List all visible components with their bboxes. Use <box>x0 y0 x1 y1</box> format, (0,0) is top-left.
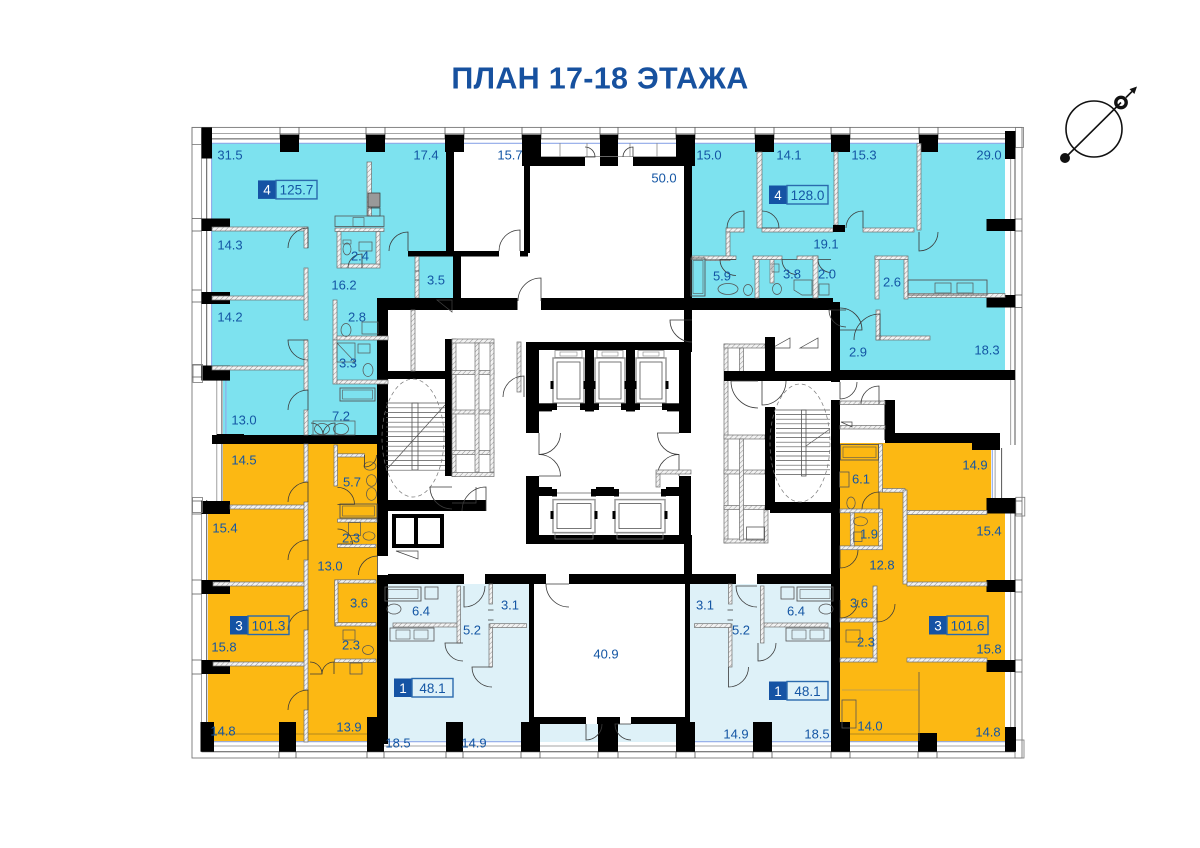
svg-text:1: 1 <box>399 681 407 696</box>
svg-text:14.1: 14.1 <box>776 148 801 163</box>
svg-text:7.2: 7.2 <box>332 409 350 424</box>
svg-text:3: 3 <box>235 618 243 633</box>
svg-text:3.6: 3.6 <box>350 596 368 611</box>
svg-text:6.4: 6.4 <box>787 604 805 619</box>
svg-text:1.9: 1.9 <box>860 527 878 542</box>
svg-text:2.4: 2.4 <box>351 249 369 264</box>
svg-text:12.8: 12.8 <box>869 558 894 573</box>
svg-text:2.3: 2.3 <box>857 635 875 650</box>
svg-text:5.7: 5.7 <box>343 475 361 490</box>
svg-text:15.4: 15.4 <box>212 521 237 536</box>
svg-text:5.2: 5.2 <box>732 623 750 638</box>
svg-text:101.6: 101.6 <box>951 618 985 633</box>
svg-text:14.9: 14.9 <box>723 727 748 742</box>
svg-text:3.5: 3.5 <box>427 273 445 288</box>
svg-text:13.9: 13.9 <box>336 720 361 735</box>
svg-text:50.0: 50.0 <box>651 171 676 186</box>
svg-text:14.3: 14.3 <box>217 238 242 253</box>
svg-text:14.9: 14.9 <box>461 736 486 751</box>
svg-text:18.5: 18.5 <box>385 736 410 751</box>
svg-text:13.0: 13.0 <box>317 559 342 574</box>
svg-text:31.5: 31.5 <box>217 148 242 163</box>
svg-text:3.3: 3.3 <box>339 356 357 371</box>
svg-text:4: 4 <box>774 188 782 203</box>
svg-text:128.0: 128.0 <box>791 188 825 203</box>
svg-text:14.9: 14.9 <box>962 458 987 473</box>
svg-text:18.3: 18.3 <box>974 343 999 358</box>
svg-text:15.4: 15.4 <box>976 524 1001 539</box>
svg-text:ПЛАН 17-18 ЭТАЖА: ПЛАН 17-18 ЭТАЖА <box>451 62 748 96</box>
svg-text:4: 4 <box>263 183 271 198</box>
svg-text:3.1: 3.1 <box>501 598 519 613</box>
svg-text:15.3: 15.3 <box>851 148 876 163</box>
svg-text:3.1: 3.1 <box>696 598 714 613</box>
svg-text:2.8: 2.8 <box>348 310 366 325</box>
svg-text:16.2: 16.2 <box>331 278 356 293</box>
svg-text:15.8: 15.8 <box>976 642 1001 657</box>
svg-text:2.3: 2.3 <box>342 638 360 653</box>
svg-text:101.3: 101.3 <box>252 618 286 633</box>
svg-text:14.8: 14.8 <box>210 724 235 739</box>
svg-text:15.7: 15.7 <box>497 148 522 163</box>
svg-text:14.0: 14.0 <box>857 719 882 734</box>
svg-text:48.1: 48.1 <box>419 681 445 696</box>
svg-text:6.4: 6.4 <box>412 604 430 619</box>
svg-text:13.0: 13.0 <box>231 413 256 428</box>
svg-text:5.9: 5.9 <box>713 269 731 284</box>
svg-text:19.1: 19.1 <box>813 237 838 252</box>
svg-text:6.1: 6.1 <box>852 472 870 487</box>
svg-text:3.8: 3.8 <box>783 267 801 282</box>
svg-text:15.8: 15.8 <box>211 640 236 655</box>
svg-text:125.7: 125.7 <box>280 183 314 198</box>
svg-text:18.5: 18.5 <box>804 727 829 742</box>
svg-text:17.4: 17.4 <box>413 148 438 163</box>
svg-text:29.0: 29.0 <box>976 148 1001 163</box>
svg-text:48.1: 48.1 <box>794 684 820 699</box>
svg-text:2.6: 2.6 <box>883 275 901 290</box>
svg-text:15.0: 15.0 <box>696 148 721 163</box>
svg-text:3: 3 <box>934 618 942 633</box>
svg-text:2.3: 2.3 <box>342 531 360 546</box>
svg-text:14.2: 14.2 <box>217 310 242 325</box>
svg-text:3.6: 3.6 <box>850 596 868 611</box>
svg-text:2.0: 2.0 <box>818 267 836 282</box>
svg-text:14.8: 14.8 <box>975 725 1000 740</box>
svg-text:14.5: 14.5 <box>231 453 256 468</box>
svg-text:2.9: 2.9 <box>849 345 867 360</box>
svg-text:1: 1 <box>774 684 782 699</box>
svg-text:5.2: 5.2 <box>463 623 481 638</box>
svg-text:40.9: 40.9 <box>593 647 618 662</box>
